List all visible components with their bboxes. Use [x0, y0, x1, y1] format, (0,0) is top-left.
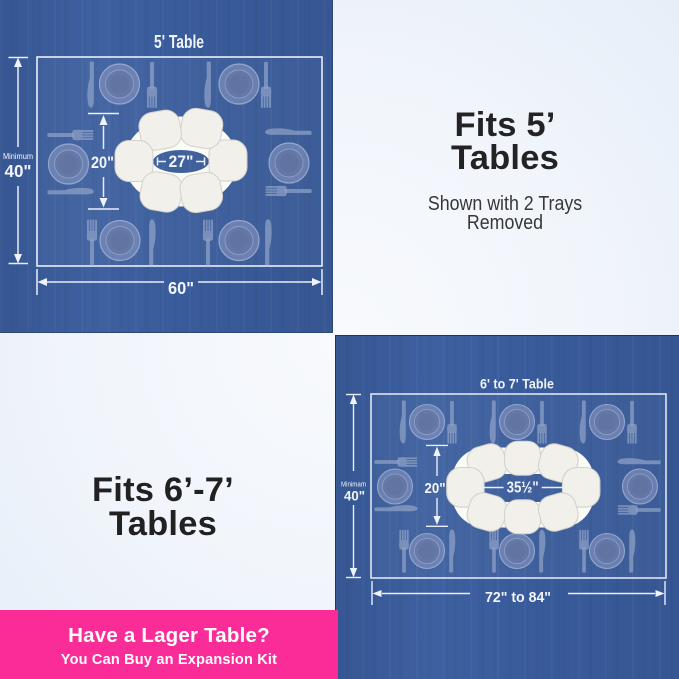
svg-text:60": 60": [168, 278, 194, 298]
svg-text:40": 40": [344, 488, 365, 504]
svg-text:40": 40": [5, 161, 32, 181]
svg-text:20": 20": [425, 480, 446, 497]
svg-text:20": 20": [91, 154, 114, 172]
svg-text:27": 27": [169, 153, 194, 171]
svg-text:5' Table: 5' Table: [154, 32, 204, 52]
svg-text:72" to 84": 72" to 84": [485, 590, 551, 606]
svg-text:6' to 7' Table: 6' to 7' Table: [480, 377, 554, 392]
svg-text:Minimum: Minimum: [3, 151, 33, 161]
svg-text:35½": 35½": [507, 480, 539, 497]
